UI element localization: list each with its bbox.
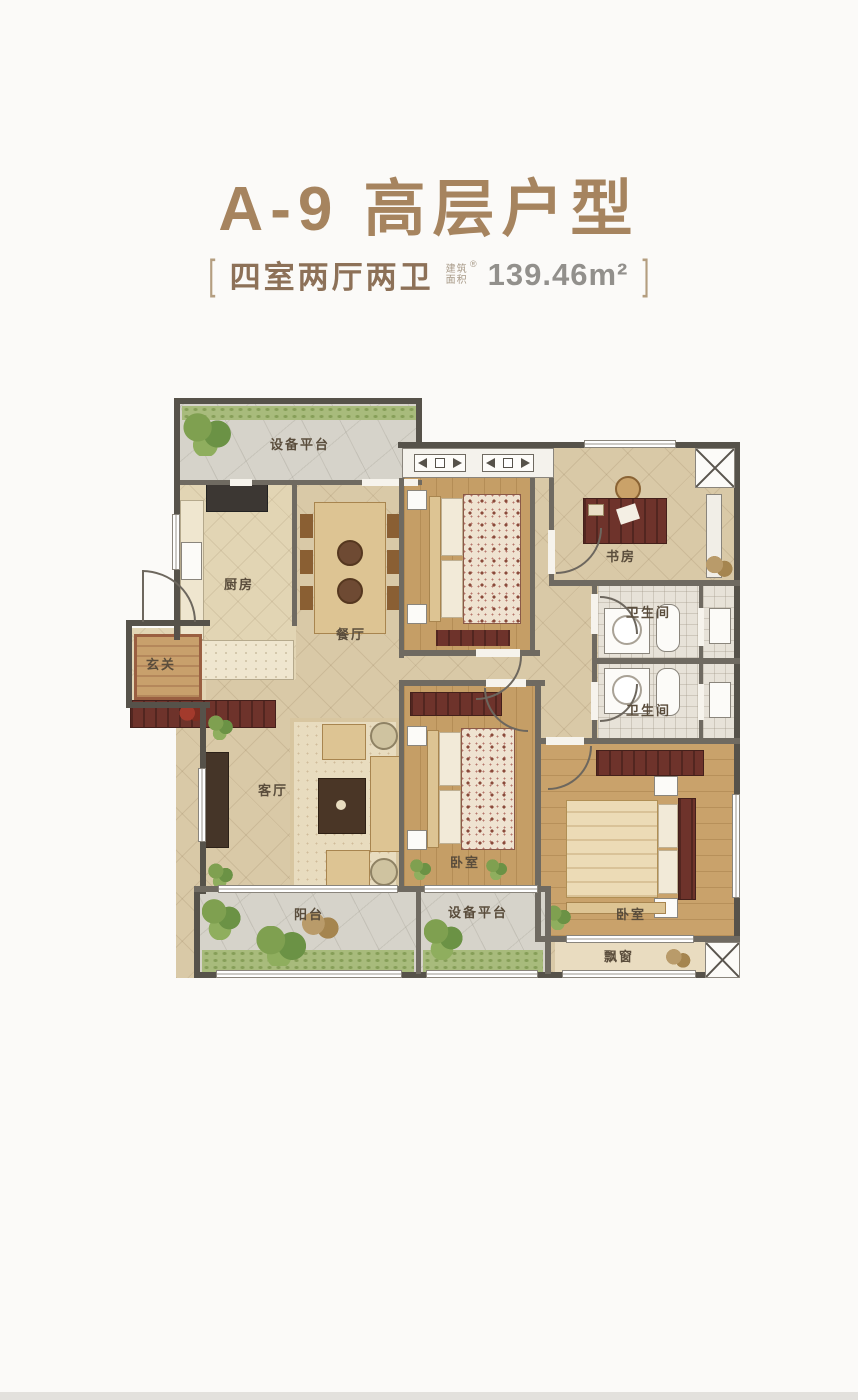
bed-pillow <box>439 732 461 786</box>
wardrobe <box>596 750 704 776</box>
room-label-bay-window: 飘窗 <box>604 946 634 965</box>
decor-plant-icon <box>704 552 734 580</box>
left-bracket: [ <box>208 254 215 296</box>
casement-window-icon <box>414 454 466 472</box>
plant-icon <box>410 858 432 880</box>
side-table <box>370 722 398 750</box>
dining-centerpiece <box>337 578 363 604</box>
dining-centerpiece <box>337 540 363 566</box>
inner-wall <box>535 686 541 942</box>
area-caption: 建筑 面积 ® <box>446 264 476 286</box>
room-label-bath-lower: 卫生间 <box>626 700 671 719</box>
room-label-bedroom-mid: 卧室 <box>450 852 480 871</box>
wall <box>194 890 200 978</box>
dining-table <box>314 502 386 634</box>
nightstand <box>407 490 427 510</box>
room-label-balcony: 阳台 <box>294 904 324 923</box>
shower-fixture <box>709 682 731 718</box>
bed-blanket-floral <box>463 494 521 624</box>
room-label-equipment-platform-top: 设备平台 <box>270 434 330 453</box>
door-opening <box>698 608 704 646</box>
window <box>172 514 180 570</box>
inner-wall <box>399 478 404 658</box>
bed-pillow <box>658 804 678 848</box>
door-opening <box>591 682 598 720</box>
plant-icon <box>202 896 242 940</box>
window <box>218 885 398 893</box>
door-opening <box>362 479 418 486</box>
window <box>732 794 740 898</box>
room-label-study: 书房 <box>606 546 636 565</box>
bed-headboard <box>678 798 696 900</box>
room-label-kitchen: 厨房 <box>224 574 254 593</box>
dining-chair <box>300 586 313 610</box>
nightstand <box>407 830 427 850</box>
inner-wall <box>530 478 535 656</box>
nightstand <box>407 726 427 746</box>
bottom-edge-strip <box>0 1392 858 1400</box>
room-label-living: 客厅 <box>258 780 288 799</box>
armchair <box>326 850 370 886</box>
door-opening <box>546 737 584 745</box>
window <box>562 970 696 978</box>
door-opening <box>230 479 252 486</box>
nightstand <box>654 776 678 796</box>
room-label-bedroom-master: 卧室 <box>616 904 646 923</box>
door-opening <box>591 594 598 634</box>
right-bracket: ] <box>643 254 650 296</box>
wall <box>126 620 132 708</box>
inner-wall <box>292 484 297 626</box>
plant-icon <box>208 714 234 740</box>
window <box>426 970 538 978</box>
master-bed-blanket <box>566 800 658 898</box>
door-opening <box>698 684 704 720</box>
bed-pillow <box>439 790 461 844</box>
inner-wall <box>549 580 740 586</box>
bed-pillow <box>441 498 463 556</box>
window <box>584 440 676 448</box>
inner-wall <box>416 892 421 974</box>
registered-mark-icon: ® <box>470 259 478 270</box>
inner-wall <box>399 686 404 890</box>
window <box>424 885 538 893</box>
inner-wall <box>545 890 551 974</box>
nightstand <box>407 604 427 624</box>
room-label-entry: 玄关 <box>146 654 176 673</box>
bed-headboard <box>427 730 439 848</box>
page-title: A-9 高层户型 <box>0 158 858 248</box>
room-label-dining: 餐厅 <box>336 624 366 643</box>
side-table <box>370 858 398 886</box>
bed-headboard <box>429 496 441 622</box>
plant-icon <box>486 858 508 880</box>
kitchen-sink <box>181 542 202 580</box>
room-label-bath-upper: 卫生间 <box>626 602 671 621</box>
area-value: 139.46m² <box>488 257 629 293</box>
bay-decor <box>664 946 692 970</box>
floor-plan: 设备平台 厨房 餐厅 书房 卫生间 卫生间 玄关 客厅 卧室 卧室 阳台 设备平… <box>118 396 748 988</box>
sofa <box>370 756 402 852</box>
window <box>216 970 402 978</box>
armchair <box>322 724 366 760</box>
layout-label: 四室两厅两卫 <box>230 252 434 297</box>
plant-icon <box>424 916 464 960</box>
bed-pillow <box>658 850 678 894</box>
wall <box>126 702 210 708</box>
shower-fixture <box>709 608 731 644</box>
bed-blanket-floral <box>461 728 515 850</box>
page: { "header": { "title": "A-9 高层户型", "brac… <box>0 0 858 1400</box>
dining-chair <box>300 550 313 574</box>
area-caption-line1: 建筑 <box>446 264 468 275</box>
bed-bench <box>436 630 510 646</box>
table-decor <box>336 800 346 810</box>
inner-wall <box>597 658 740 664</box>
dining-chair <box>300 514 313 538</box>
desk-lamp <box>588 504 604 516</box>
room-label-equipment-platform-bottom: 设备平台 <box>448 902 508 921</box>
wall <box>174 398 422 404</box>
casement-window-icon <box>482 454 534 472</box>
stove <box>206 482 268 512</box>
bed-pillow <box>441 560 463 618</box>
shaft-x-icon <box>705 942 740 978</box>
shaft-x-icon <box>695 448 735 488</box>
tv-cabinet <box>205 752 229 848</box>
bay-window-opening <box>566 935 694 943</box>
door-opening <box>548 530 555 574</box>
window <box>198 768 206 842</box>
plant-icon <box>182 412 234 456</box>
area-caption-line2: 面积 <box>446 275 468 286</box>
subtitle-row: [ 四室两厅两卫 建筑 面积 ® 139.46m² ] <box>0 252 858 297</box>
